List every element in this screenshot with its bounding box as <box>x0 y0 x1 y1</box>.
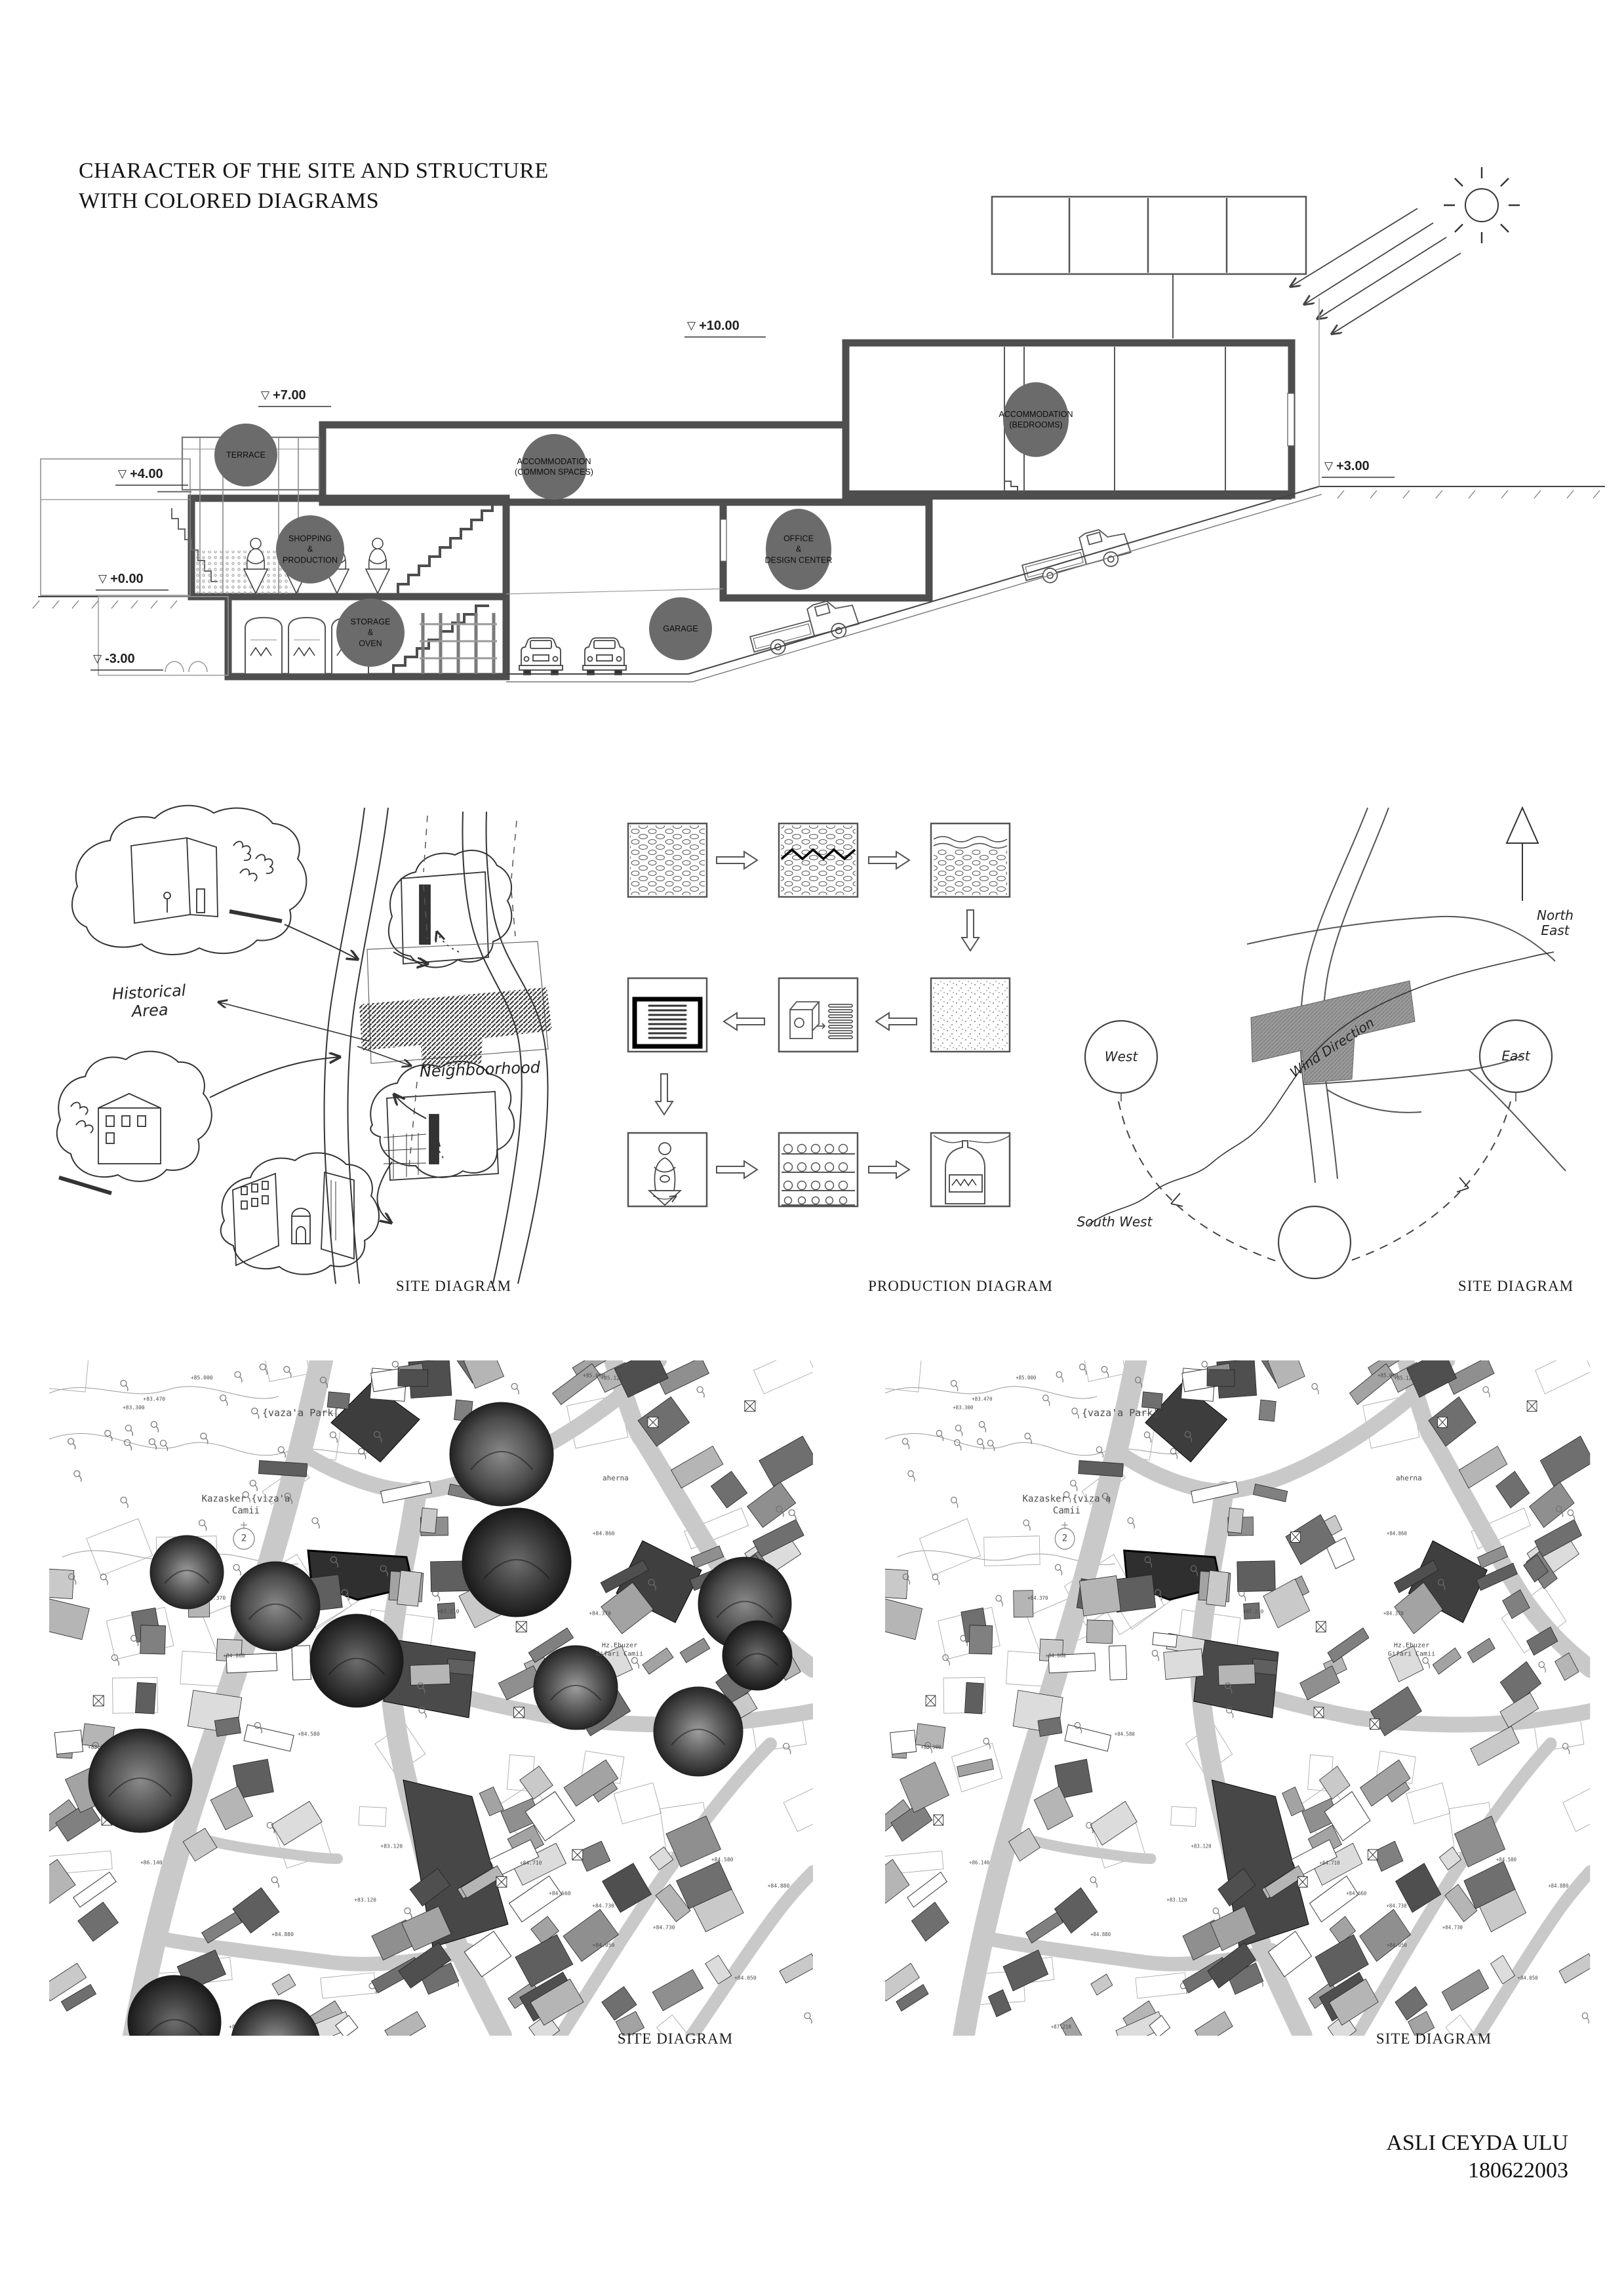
svg-text:+83.120: +83.120 <box>380 1844 403 1850</box>
svg-text:+85.000: +85.000 <box>583 1373 605 1379</box>
map-left-caption: SITE DIAGRAM <box>618 2030 733 2048</box>
hz-mosque-label: Hz.Ebuzer Gifari Camii <box>596 1642 643 1659</box>
photo-circle <box>450 1402 553 1506</box>
svg-text:+83.300: +83.300 <box>953 1404 973 1410</box>
level-label: +4.00 <box>130 467 163 482</box>
space-label-common: ACCOMMODATION (COMMON SPACES) <box>505 456 603 478</box>
photo-circle <box>310 1614 403 1707</box>
photo-circle <box>462 1508 571 1617</box>
sketch-site-diagram <box>57 806 552 1284</box>
space-label-terrace: TERRACE <box>197 450 295 460</box>
level-triangle-icon: ▽ <box>261 389 269 402</box>
svg-text:+86.140: +86.140 <box>140 1859 163 1865</box>
east-label: East <box>1501 1049 1530 1064</box>
park-label: {vaza'a Park[ <box>1082 1407 1159 1419</box>
level-label: -3.00 <box>105 652 135 667</box>
building-section-drawing <box>33 167 1605 682</box>
level-triangle-icon: ▽ <box>687 319 696 332</box>
svg-text:+83.300: +83.300 <box>123 1405 145 1411</box>
svg-text:+84.580: +84.580 <box>298 1732 320 1737</box>
space-label-shopping: SHOPPING & PRODUCTION <box>261 534 359 566</box>
svg-text:+84.880: +84.880 <box>1090 1931 1111 1937</box>
svg-text:+84.710: +84.710 <box>520 1860 542 1866</box>
south-west-label: South West <box>1077 1215 1153 1230</box>
svg-text:+84.370: +84.370 <box>1027 1595 1048 1601</box>
svg-text:+83.470: +83.470 <box>143 1396 165 1402</box>
level-triangle-icon: ▽ <box>93 652 102 665</box>
svg-text:+84.050: +84.050 <box>734 1975 757 1981</box>
photo-circle <box>150 1535 224 1609</box>
artwork-canvas: +84.730+84.710+84.370+84.860+84.050+83.1… <box>0 0 1624 2296</box>
photo-circle <box>128 1975 221 2068</box>
svg-text:+83.470: +83.470 <box>972 1396 992 1402</box>
svg-text:+87.210: +87.210 <box>437 1609 460 1615</box>
svg-text:+84.050: +84.050 <box>1518 1975 1538 1981</box>
svg-text:+84.860: +84.860 <box>1387 1530 1407 1536</box>
svg-text:+84.580: +84.580 <box>1496 1857 1516 1863</box>
space-label-office: OFFICE & DESIGN CENTER <box>749 534 848 566</box>
svg-text:+83.120: +83.120 <box>354 1897 376 1903</box>
garage-cars <box>519 638 626 675</box>
svg-text:+84.580: +84.580 <box>711 1857 734 1863</box>
north-east-label: North East <box>1537 908 1574 938</box>
svg-text:+84.860: +84.860 <box>223 1653 245 1659</box>
sun-icon <box>1444 167 1520 243</box>
map-right-caption: SITE DIAGRAM <box>1376 2030 1492 2048</box>
space-label-bedrooms: ACCOMMODATION (BEDROOMS) <box>987 409 1085 431</box>
level-label: +7.00 <box>273 388 306 403</box>
bath-label: aherna <box>1396 1474 1422 1483</box>
site-map-right: +84.730+84.710+84.370+84.860+84.050+83.1… <box>867 1344 1608 2121</box>
photo-circle <box>231 2000 320 2089</box>
level-label: +10.00 <box>699 319 740 334</box>
level-marker-plus7: ▽ +7.00 <box>261 388 306 403</box>
author-name: ASLI CEYDA ULU <box>1386 2131 1568 2156</box>
svg-text:+84.370: +84.370 <box>589 1610 611 1616</box>
space-label-storage: STORAGE & OVEN <box>321 617 420 649</box>
svg-text:+84.730: +84.730 <box>592 1903 614 1909</box>
mosque-number: 2 <box>241 1533 247 1545</box>
svg-text:+84.660: +84.660 <box>549 1890 571 1896</box>
production-diagram-art <box>628 823 1010 1206</box>
svg-text:+85.000: +85.000 <box>191 1375 213 1381</box>
west-label: West <box>1105 1050 1138 1065</box>
svg-text:+84.710: +84.710 <box>1319 1860 1339 1866</box>
storage-shelving <box>420 613 497 674</box>
svg-text:+87.210: +87.210 <box>1243 1608 1263 1614</box>
svg-text:+84.370: +84.370 <box>1383 1610 1404 1616</box>
svg-text:+83.120: +83.120 <box>1166 1897 1187 1903</box>
level-marker-plus3: ▽ +3.00 <box>1324 459 1370 474</box>
historical-area-label: Historical Area <box>111 982 187 1022</box>
svg-text:+85.000: +85.000 <box>1016 1375 1036 1381</box>
svg-text:+84.880: +84.880 <box>271 1931 294 1937</box>
north-arrow-icon <box>1507 808 1538 901</box>
photo-circle <box>89 1729 192 1832</box>
svg-text:+84.880: +84.880 <box>1548 1883 1568 1889</box>
level-marker-minus3: ▽ -3.00 <box>93 652 135 667</box>
space-label-garage: GARAGE <box>631 623 730 634</box>
author-id: 180622003 <box>1468 2158 1568 2183</box>
wind-diagram-caption: SITE DIAGRAM <box>1458 1278 1574 1295</box>
sunlight-arrows <box>1290 208 1461 334</box>
svg-text:+84.860: +84.860 <box>593 1530 615 1536</box>
hz-mosque-label: Hz.Ebuzer Gifari Camii <box>1388 1642 1435 1659</box>
sketch-plan <box>210 808 552 1284</box>
page-title-line1: CHARACTER OF THE SITE AND STRUCTURE <box>79 159 549 184</box>
svg-text:+84.660: +84.660 <box>1346 1890 1366 1896</box>
level-marker-plus4: ▽ +4.00 <box>118 467 163 482</box>
mosque-label: Kazasker {viza'a Camii <box>202 1494 290 1517</box>
mosque-number: 2 <box>1062 1533 1067 1545</box>
shaded-site-parcel <box>1251 981 1415 1083</box>
svg-text:+84.880: +84.880 <box>768 1883 790 1889</box>
level-triangle-icon: ▽ <box>118 467 127 481</box>
level-marker-plus10: ▽ +10.00 <box>687 319 740 334</box>
photo-circle <box>231 1562 320 1651</box>
bath-label: aherna <box>603 1474 629 1483</box>
page-title-line2: WITH COLORED DIAGRAMS <box>79 189 379 214</box>
svg-text:+84.710: +84.710 <box>1238 1691 1259 1697</box>
production-diagram-caption: PRODUCTION DIAGRAM <box>868 1278 1053 1295</box>
wind-river-line <box>1088 952 1554 1225</box>
svg-text:+83.120: +83.120 <box>1191 1843 1211 1849</box>
svg-text:+84.730: +84.730 <box>1386 1903 1406 1909</box>
svg-text:+84.050: +84.050 <box>1387 1942 1407 1948</box>
svg-text:+84.580: +84.580 <box>1115 1731 1135 1737</box>
site-map-left: +84.730+84.710+84.370+84.860+84.050+83.1… <box>30 1344 833 2121</box>
svg-text:+85.000: +85.000 <box>1377 1372 1398 1378</box>
svg-text:+84.860: +84.860 <box>1046 1653 1066 1659</box>
svg-text:+83.300: +83.300 <box>921 1744 941 1750</box>
svg-text:+87.210: +87.210 <box>1051 2024 1071 2030</box>
photo-circle <box>723 1621 792 1690</box>
svg-text:+86.140: +86.140 <box>969 1859 989 1865</box>
level-triangle-icon: ▽ <box>98 572 107 585</box>
photo-circle <box>654 1687 743 1776</box>
svg-text:+84.050: +84.050 <box>593 1943 615 1949</box>
level-triangle-icon: ▽ <box>1324 460 1333 473</box>
level-label: +3.00 <box>1336 459 1370 474</box>
roof-block <box>992 197 1306 338</box>
svg-text:+84.730: +84.730 <box>1442 1924 1463 1930</box>
level-marker-zero: ▽ +0.00 <box>98 572 144 587</box>
level-label: +0.00 <box>110 572 144 587</box>
svg-text:+84.710: +84.710 <box>432 1691 454 1697</box>
mosque-label: Kazasker {viza'a Camii <box>1023 1494 1111 1517</box>
park-label: {vaza'a Park[ <box>262 1407 339 1419</box>
sketch-diagram-caption: SITE DIAGRAM <box>396 1278 511 1295</box>
svg-text:+84.730: +84.730 <box>653 1925 675 1931</box>
presentation-board: { "page": { "title_line1": "CHARACTER OF… <box>0 0 1624 2296</box>
